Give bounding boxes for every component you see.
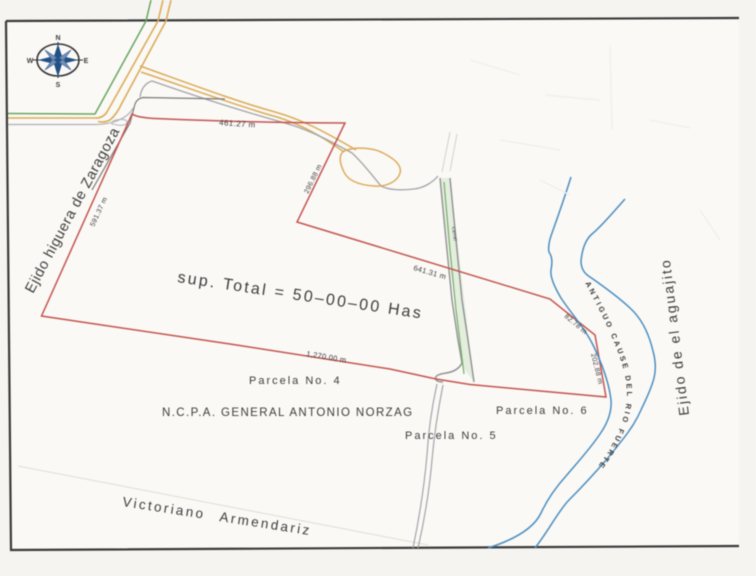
svg-text:E: E bbox=[84, 58, 89, 65]
svg-text:S: S bbox=[56, 82, 61, 89]
svg-text:N.C.P.A. GENERAL ANTONIO NO: N.C.P.A. GENERAL ANTONIO NORZAG bbox=[162, 407, 414, 419]
svg-text:Parcela No. 6: Parcela No. 6 bbox=[496, 405, 589, 417]
svg-text:N: N bbox=[55, 35, 60, 42]
svg-text:Parcela No. 4: Parcela No. 4 bbox=[249, 375, 342, 387]
svg-text:W: W bbox=[27, 58, 34, 65]
svg-text:Parcela No. 5: Parcela No. 5 bbox=[405, 430, 498, 442]
